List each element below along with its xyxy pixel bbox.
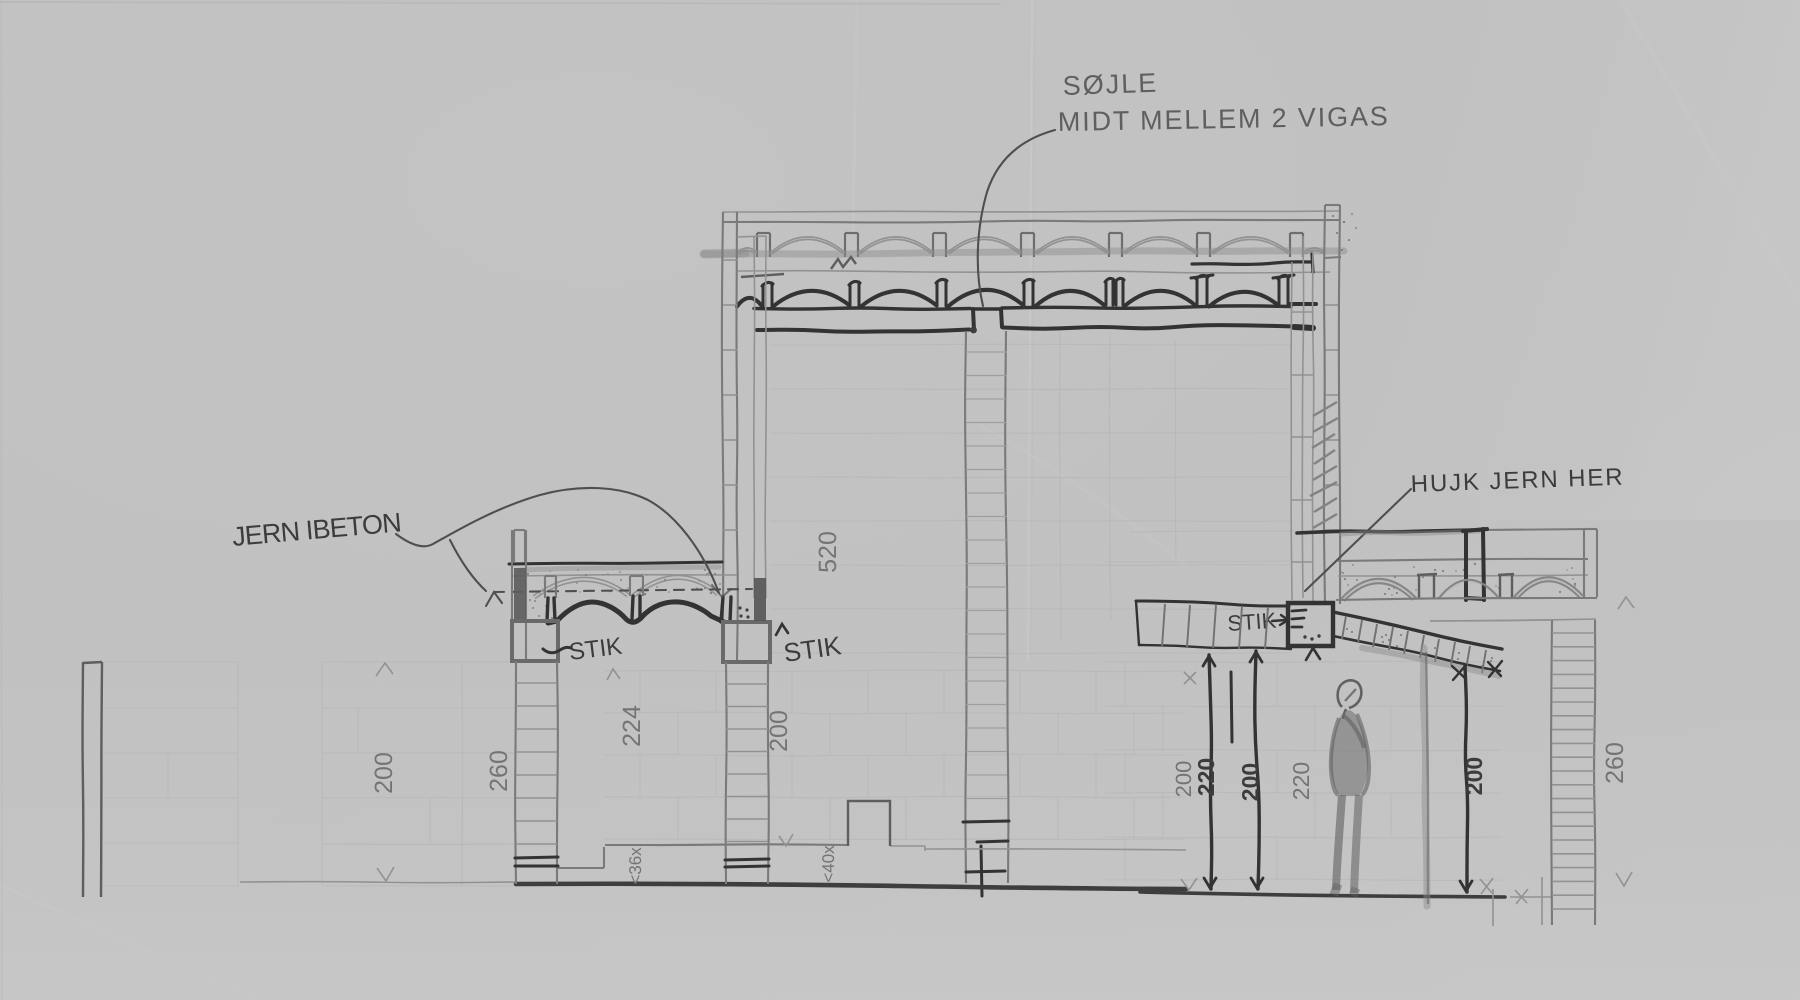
- svg-text:<40x: <40x: [819, 845, 838, 883]
- svg-text:200: 200: [370, 752, 398, 794]
- svg-text:200: 200: [1237, 763, 1263, 801]
- svg-text:MIDT MELLEM 2 VIGAS: MIDT MELLEM 2 VIGAS: [1058, 101, 1388, 137]
- svg-text:220: 220: [1193, 758, 1219, 796]
- svg-text:200: 200: [1461, 757, 1487, 795]
- svg-text:224: 224: [618, 705, 646, 747]
- svg-text:SØJLE: SØJLE: [1062, 68, 1159, 101]
- svg-text:260: 260: [1601, 742, 1629, 784]
- svg-text:220: 220: [1288, 762, 1314, 800]
- svg-text:260: 260: [485, 750, 513, 792]
- svg-text:STIK: STIK: [1227, 608, 1278, 636]
- svg-text:<36x: <36x: [626, 847, 645, 885]
- svg-text:200: 200: [765, 710, 793, 752]
- svg-text:520: 520: [814, 531, 842, 573]
